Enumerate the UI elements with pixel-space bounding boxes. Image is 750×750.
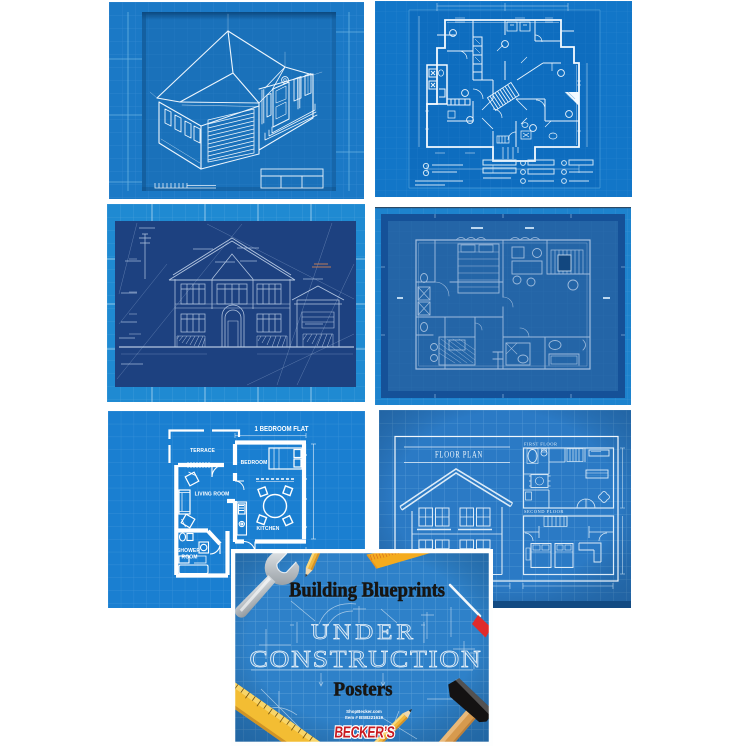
svg-text:CONSTRUCTION: CONSTRUCTION [250, 646, 483, 673]
svg-text:ShopBecker.com: ShopBecker.com [346, 709, 382, 714]
svg-text:SECOND FLOOR: SECOND FLOOR [524, 509, 564, 514]
svg-text:UNDER: UNDER [311, 619, 417, 644]
svg-text:Item # BSB221619: Item # BSB221619 [345, 715, 383, 720]
svg-text:FIRST FLOOR: FIRST FLOOR [524, 442, 558, 447]
svg-text:LIVING ROOM: LIVING ROOM [195, 492, 230, 498]
svg-text:1 BEDROOM FLAT: 1 BEDROOM FLAT [255, 426, 310, 433]
svg-text:FLOOR PLAN: FLOOR PLAN [435, 450, 483, 460]
svg-text:ROOM: ROOM [182, 555, 198, 561]
svg-text:KITCHEN: KITCHEN [257, 526, 280, 532]
svg-text:BECKER’S: BECKER’S [334, 724, 396, 742]
svg-text:BEDROOM: BEDROOM [241, 460, 268, 466]
svg-text:Posters: Posters [334, 679, 393, 701]
svg-text:SHOWER: SHOWER [177, 548, 200, 554]
svg-text:TERRACE: TERRACE [190, 448, 215, 454]
svg-text:Building Blueprints: Building Blueprints [289, 578, 445, 602]
